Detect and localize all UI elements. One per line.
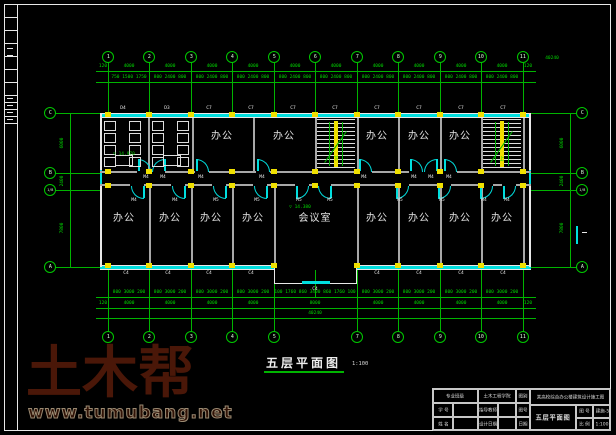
axis-extension (398, 270, 399, 332)
dim-text: 800 2400 800 (237, 75, 270, 80)
title-block-cell: 图 号 (576, 405, 593, 418)
section-tick (582, 232, 587, 233)
axis-extension (191, 270, 192, 332)
toilet-stall (152, 145, 164, 155)
dim-text: 4000 (414, 64, 425, 69)
title-block-cell: 1:100 (593, 418, 611, 431)
room-label: 办公 (449, 214, 471, 224)
door-label: M4 (361, 175, 366, 180)
door-label: M4 (481, 198, 486, 203)
dim-text: 800 2400 800 (154, 75, 187, 80)
dim-text: 4000 (497, 301, 508, 306)
door-swing-arc (359, 159, 372, 172)
axis-extension (357, 62, 358, 113)
dim-text: 120 (524, 301, 532, 306)
dim-text: 2400 (560, 176, 565, 187)
strip-row (4, 56, 17, 57)
column (105, 169, 111, 174)
axis-bubble: 9 (434, 331, 446, 343)
column (520, 183, 526, 188)
dim-text: 800 3000 200 (196, 290, 229, 295)
strip-row (4, 102, 17, 103)
dim-text: 800 2400 800 (362, 75, 395, 80)
opening-label: C7 (332, 106, 337, 111)
door-leaf (225, 186, 227, 198)
axis-bubble: 5 (268, 51, 280, 63)
door-label: M4 (446, 175, 451, 180)
opening-label: C4 (165, 271, 170, 276)
column (478, 183, 484, 188)
axis-extension (191, 62, 192, 113)
column (229, 169, 235, 174)
frame-border (610, 4, 611, 431)
title-block-cell: 姓 名 (433, 417, 453, 431)
door-leaf (266, 186, 268, 198)
dim-text: 800 3000 200 (486, 290, 519, 295)
axis-bubble: C (576, 107, 588, 119)
dim-text: 4000 (331, 64, 342, 69)
door-leaf (143, 186, 145, 198)
dim-text: 800 2400 800 (320, 75, 353, 80)
dim-text: 800 3000 200 (445, 290, 478, 295)
column (520, 263, 526, 268)
strip-row (4, 17, 17, 18)
column (354, 183, 360, 188)
dim-text: 4000 (290, 64, 301, 69)
room-label: 办公 (449, 132, 471, 142)
column (478, 169, 484, 174)
strip-mark (7, 119, 13, 120)
section-mark (576, 226, 578, 244)
toilet-stall (177, 121, 189, 131)
door-swing-arc (196, 159, 209, 172)
axis-bubble: C (44, 107, 56, 119)
dim-text: 7800 (560, 223, 565, 234)
title-block-cell: 某高校综合办公楼建筑设计施工图 (530, 389, 611, 405)
toilet-stall (177, 133, 189, 143)
exterior-wall (529, 113, 531, 267)
strip-row (4, 43, 17, 44)
opening-label: C4 (206, 271, 211, 276)
strip-row (4, 116, 17, 117)
column (146, 112, 152, 117)
axis-bubble: 10 (475, 51, 487, 63)
column (312, 112, 318, 117)
dim-text: 120 (99, 301, 107, 306)
dim-text: 4000 (207, 64, 218, 69)
opening-label: C7 (206, 106, 211, 111)
title-underline (264, 371, 344, 373)
dim-text: 800 3000 200 (237, 290, 270, 295)
opening-label: D4 (120, 106, 125, 111)
door-label: M5 (254, 198, 259, 203)
column (354, 263, 360, 268)
door-label: M5 (296, 198, 301, 203)
door-leaf (257, 159, 259, 171)
column (437, 183, 443, 188)
door-label: M4 (259, 175, 264, 180)
toilet-stall (152, 133, 164, 143)
title-block-cell (453, 417, 478, 431)
dim-text: 6000 (560, 138, 565, 149)
column (188, 183, 194, 188)
axis-bubble: 5 (268, 331, 280, 343)
door-label: M5 (439, 198, 444, 203)
strip-mark (7, 48, 13, 49)
room-label: 办公 (366, 214, 388, 224)
stair-guard (508, 122, 509, 166)
column (478, 112, 484, 117)
dim-text: 4000 (456, 64, 467, 69)
axis-bubble: 1/B (576, 184, 588, 196)
door-label: M5 (397, 198, 402, 203)
axis-bubble: 11 (517, 51, 529, 63)
door-label: M4 (131, 198, 136, 203)
dim-text: 4000 (207, 301, 218, 306)
dim-text: 8000 (310, 301, 321, 306)
level-mark: ▽ 14.380 (289, 205, 311, 210)
opening-label: C7 (374, 106, 379, 111)
stair-direction: 下 (334, 157, 339, 162)
partition-wall (523, 186, 525, 265)
dim-text: 6000 (60, 138, 65, 149)
dim-text: 4000 (248, 64, 259, 69)
column (520, 112, 526, 117)
room-label: 办公 (366, 132, 388, 142)
frame-border (4, 4, 611, 5)
axis-bubble: 7 (351, 51, 363, 63)
column (437, 112, 443, 117)
strip-mark (7, 55, 13, 56)
stair-guard (495, 122, 496, 166)
axis-extension (357, 270, 358, 332)
dim-text: 4000 (373, 64, 384, 69)
opening-label: C4 (500, 271, 505, 276)
door-label: M4 (160, 175, 165, 180)
partition-wall (192, 118, 194, 171)
axis-extension (108, 270, 109, 332)
axis-bubble: 7 (351, 331, 363, 343)
column (478, 263, 484, 268)
title-block-cell: 设计日期 (478, 417, 498, 431)
title-block-cell: 图号 (516, 403, 530, 417)
partition-wall (274, 186, 276, 265)
axis-bubble: A (576, 261, 588, 273)
room-label: 办公 (113, 214, 135, 224)
partition-wall (253, 118, 255, 171)
dim-text: 4000 (497, 64, 508, 69)
title-block-cell: 五层平面图 (530, 405, 576, 431)
dim-text: 4000 (414, 301, 425, 306)
room-label: 办公 (242, 214, 264, 224)
cad-sheet: 1204000400040004000400040004000400040004… (0, 0, 616, 435)
axis-bubble: 4 (226, 51, 238, 63)
column (437, 263, 443, 268)
column (395, 112, 401, 117)
drawing-scale: 1:100 (352, 361, 368, 367)
dim-text: 4000 (124, 64, 135, 69)
axis-extension (149, 270, 150, 332)
dim-line (96, 297, 536, 298)
column (437, 169, 443, 174)
dim-text: 750 1500 1750 (111, 75, 146, 80)
door-leaf (410, 159, 412, 171)
stair-guard (329, 122, 330, 166)
axis-extension (481, 270, 482, 332)
column (188, 263, 194, 268)
opening-label: C4 (248, 271, 253, 276)
axis-bubble: B (44, 167, 56, 179)
door-swing-arc (410, 159, 423, 172)
column (188, 169, 194, 174)
strip-row (4, 123, 17, 124)
title-block: 专业班级土木工程学院学 号指导教师姓 名设计日期图别图号日期某高校综合办公楼建筑… (432, 388, 610, 430)
opening-label: C7 (416, 106, 421, 111)
axis-extension (232, 62, 233, 113)
title-block-cell: 比 例 (576, 418, 593, 431)
axis-bubble: 6 (309, 51, 321, 63)
title-block-cell (498, 403, 516, 417)
door-leaf (296, 186, 298, 198)
door-label: M4 (198, 175, 203, 180)
room-label: 办公 (211, 132, 233, 142)
opening-label: C7 (458, 106, 463, 111)
toilet-stall (129, 133, 141, 143)
opening-label: D3 (164, 106, 169, 111)
axis-bubble: 9 (434, 51, 446, 63)
title-block-cell: 土木工程学院 (478, 389, 516, 403)
door-label: M4 (172, 198, 177, 203)
column (146, 263, 152, 268)
column (312, 169, 318, 174)
drawing-title: 五层平面图 (266, 357, 341, 369)
dim-text: 2400 (60, 176, 65, 187)
room-label: 办公 (159, 214, 181, 224)
toilet-sink (115, 155, 133, 166)
door-leaf (184, 186, 186, 198)
door-leaf (444, 159, 446, 171)
column (312, 183, 318, 188)
opening-label: C7 (248, 106, 253, 111)
column (105, 183, 111, 188)
dim-line (96, 82, 536, 83)
axis-bubble: 1/B (44, 184, 56, 196)
dim-text: 4000 (456, 301, 467, 306)
room-label: 办公 (273, 132, 295, 142)
dim-text: 800 2400 800 (445, 75, 478, 80)
column (229, 183, 235, 188)
axis-bubble: B (576, 167, 588, 179)
dim-text: 800 2400 800 (279, 75, 312, 80)
room-label: 办公 (408, 214, 430, 224)
partition-wall (357, 186, 359, 265)
dim-line (96, 308, 536, 309)
column (354, 169, 360, 174)
column (395, 263, 401, 268)
door-label: M4 (428, 175, 433, 180)
room-label: 办公 (491, 214, 513, 224)
door-label: M5 (213, 198, 218, 203)
title-block-cell: 建施-5 (593, 405, 611, 418)
door-label: M4 (411, 175, 416, 180)
title-block-cell: 指导教师 (478, 403, 498, 417)
axis-bubble: 8 (392, 331, 404, 343)
axis-bubble: 3 (185, 51, 197, 63)
strip-mark (7, 105, 13, 106)
column (395, 183, 401, 188)
axis-bubble: 1 (102, 51, 114, 63)
door-leaf (330, 186, 332, 198)
axis-extension (149, 62, 150, 113)
column (229, 112, 235, 117)
toilet-stall (104, 121, 116, 131)
bump-wall (274, 267, 275, 284)
strip-mark (7, 112, 13, 113)
opening-label: C4 (374, 271, 379, 276)
column (395, 169, 401, 174)
partition-wall (398, 118, 400, 171)
dim-line (96, 318, 536, 319)
title-block-cell (498, 417, 516, 431)
partition-wall (148, 118, 150, 171)
strip-row (4, 109, 17, 110)
axis-bubble: 4 (226, 331, 238, 343)
column (105, 263, 111, 268)
axis-extension (481, 62, 482, 113)
title-block-cell: 日期 (516, 417, 530, 431)
column (146, 183, 152, 188)
partition-wall (149, 186, 151, 265)
axis-extension (274, 62, 275, 113)
strip-mark (7, 98, 13, 99)
door-label: M4 (504, 198, 509, 203)
axis-bubble: 11 (517, 331, 529, 343)
dim-text: 4000 (124, 301, 135, 306)
door-leaf (503, 186, 505, 198)
column (271, 263, 277, 268)
strip-row (4, 82, 17, 83)
dim-text: 800 2400 800 (486, 75, 519, 80)
opening-label: C4 (416, 271, 421, 276)
partition-wall (440, 118, 442, 171)
dim-text: 40240 (545, 56, 559, 61)
axis-extension (108, 62, 109, 113)
exterior-wall (100, 113, 102, 267)
room-label: 办公 (200, 214, 222, 224)
column (105, 112, 111, 117)
axis-extension (523, 270, 524, 332)
stair-direction: 上 (500, 157, 505, 162)
axis-bubble: 8 (392, 51, 404, 63)
dim-line (96, 71, 536, 72)
opening-label: C4 (312, 287, 317, 292)
dim-text: 40240 (308, 311, 322, 316)
room-label: 办公 (408, 132, 430, 142)
opening-label: C4 (458, 271, 463, 276)
toilet-stall (104, 133, 116, 143)
door-label: M4 (143, 175, 148, 180)
dim-text: 800 2400 800 (403, 75, 436, 80)
door-leaf (196, 159, 198, 171)
column (229, 263, 235, 268)
dim-text: 4000 (248, 301, 259, 306)
title-block-cell: 图别 (516, 389, 530, 403)
title-block-cell: 学 号 (433, 403, 453, 417)
dim-text: 4000 (165, 64, 176, 69)
door-label: M5 (327, 198, 332, 203)
bump-wall (356, 267, 357, 284)
dim-text: 800 3000 200 (403, 290, 436, 295)
axis-bubble: 10 (475, 331, 487, 343)
axis-extension (398, 62, 399, 113)
opening-label: C7 (290, 106, 295, 111)
partition-wall (232, 186, 234, 265)
column (146, 169, 152, 174)
toilet-stall (177, 145, 189, 155)
partition-wall (523, 118, 525, 171)
bump-window (302, 281, 330, 284)
door-swing-arc (257, 159, 270, 172)
strip-row (4, 95, 17, 96)
column (188, 112, 194, 117)
door-swing-arc (444, 159, 457, 172)
opening-label: C4 (123, 271, 128, 276)
opening-label: C7 (500, 106, 505, 111)
dim-text: 800 3000 200 (362, 290, 395, 295)
watermark-url: www.tumubang.net (28, 405, 233, 422)
partition-wall (191, 186, 193, 265)
axis-extension (315, 62, 316, 113)
column (271, 169, 277, 174)
toilet-stall (152, 121, 164, 131)
toilet-stall (129, 121, 141, 131)
axis-bubble: A (44, 261, 56, 273)
dim-text: 4000 (373, 301, 384, 306)
dim-text: 800 2400 800 (196, 75, 229, 80)
dim-text: 800 3000 200 (113, 290, 146, 295)
dim-text: 120 (99, 64, 107, 69)
column (520, 169, 526, 174)
dim-text: 4000 (165, 301, 176, 306)
column (354, 112, 360, 117)
column (271, 183, 277, 188)
level-mark: ▽ 14.970 (113, 152, 135, 157)
axis-extension (440, 62, 441, 113)
stair-guard (342, 122, 343, 166)
watermark-brand: 土木帮 (26, 346, 194, 402)
toilet-sink (163, 155, 181, 166)
strip-row (4, 30, 17, 31)
frame-inner-border (17, 4, 18, 431)
dim-text: 120 (524, 64, 532, 69)
axis-extension (440, 270, 441, 332)
room-label: 会议室 (299, 214, 332, 224)
dim-text: 800 3000 200 (154, 290, 187, 295)
title-block-cell: 专业班级 (433, 389, 478, 403)
title-block-cell (453, 403, 478, 417)
column (271, 112, 277, 117)
dim-text: 7800 (60, 223, 65, 234)
strip-row (4, 4, 17, 5)
strip-row (4, 69, 17, 70)
axis-extension (232, 270, 233, 332)
axis-extension (523, 62, 524, 113)
axis-bubble: 2 (143, 51, 155, 63)
